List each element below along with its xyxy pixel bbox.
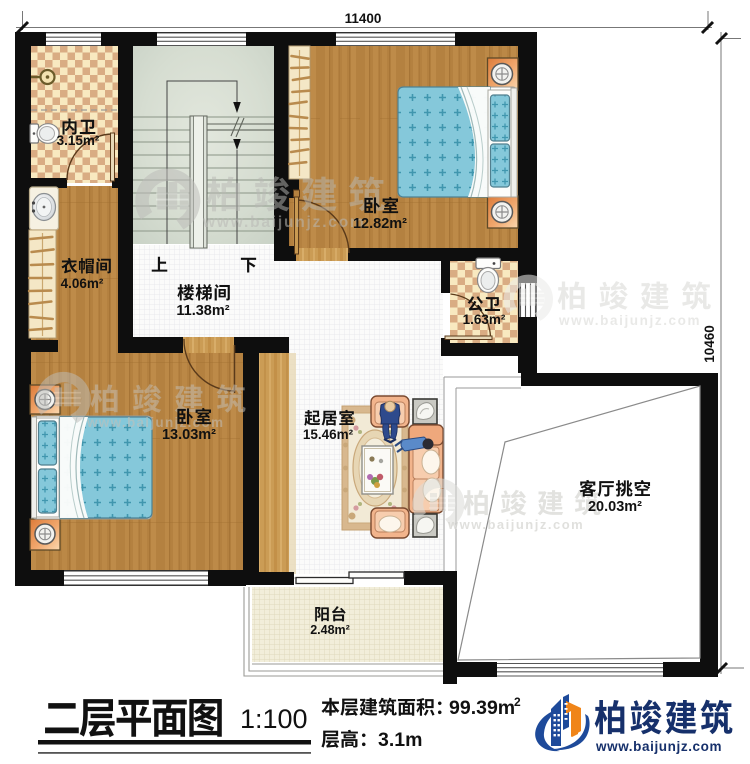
- svg-text:3.15m²: 3.15m²: [57, 133, 100, 148]
- svg-text:13.03m²: 13.03m²: [162, 427, 216, 443]
- svg-text:12.82m²: 12.82m²: [353, 216, 407, 232]
- svg-text:www.baijunjz.com: www.baijunjz.com: [558, 313, 701, 328]
- svg-text:20.03m²: 20.03m²: [588, 499, 642, 515]
- svg-text:2.48m²: 2.48m²: [310, 623, 350, 637]
- svg-text:11.38m²: 11.38m²: [176, 303, 229, 319]
- svg-text:4.06m²: 4.06m²: [61, 276, 104, 291]
- svg-text:1:100: 1:100: [240, 704, 308, 734]
- svg-text:2: 2: [514, 695, 521, 709]
- svg-text:15.46m²: 15.46m²: [303, 427, 354, 442]
- svg-text:99.39m: 99.39m: [449, 697, 515, 719]
- svg-text:3.1m: 3.1m: [378, 729, 422, 751]
- svg-text:www.baijunjz.com: www.baijunjz.com: [202, 214, 366, 231]
- svg-text:1.63m²: 1.63m²: [463, 312, 506, 327]
- svg-text:www.baijunjz.com: www.baijunjz.com: [447, 517, 584, 532]
- svg-text:10460: 10460: [702, 325, 717, 363]
- svg-text:11400: 11400: [345, 11, 382, 26]
- svg-text:www.baijunjz.com: www.baijunjz.com: [595, 739, 722, 754]
